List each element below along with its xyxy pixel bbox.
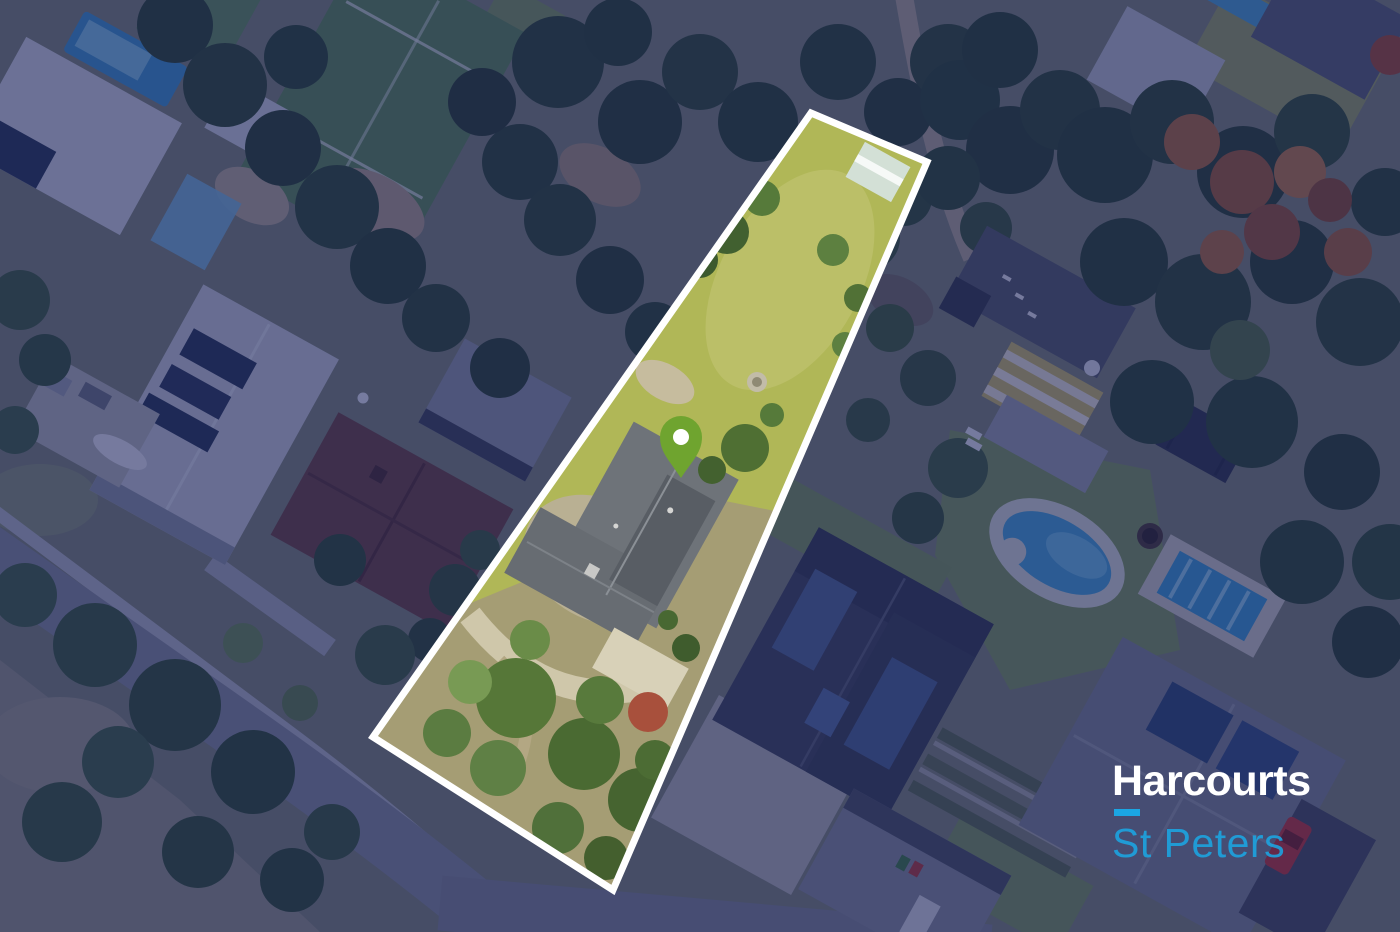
tree bbox=[817, 234, 849, 266]
aerial-property-photo: Harcourts St Peters bbox=[0, 0, 1400, 932]
tree bbox=[658, 610, 678, 630]
tree bbox=[760, 403, 784, 427]
tree bbox=[448, 660, 492, 704]
tree bbox=[423, 709, 471, 757]
tree bbox=[698, 456, 726, 484]
tree bbox=[510, 620, 550, 660]
flowering-tree bbox=[628, 692, 668, 732]
tree bbox=[470, 740, 526, 796]
tree bbox=[548, 718, 620, 790]
tree bbox=[672, 634, 700, 662]
fountain-center bbox=[752, 377, 762, 387]
aerial-scene bbox=[0, 0, 1400, 932]
pin-hole bbox=[673, 429, 689, 445]
tree bbox=[721, 424, 769, 472]
tree bbox=[576, 676, 624, 724]
